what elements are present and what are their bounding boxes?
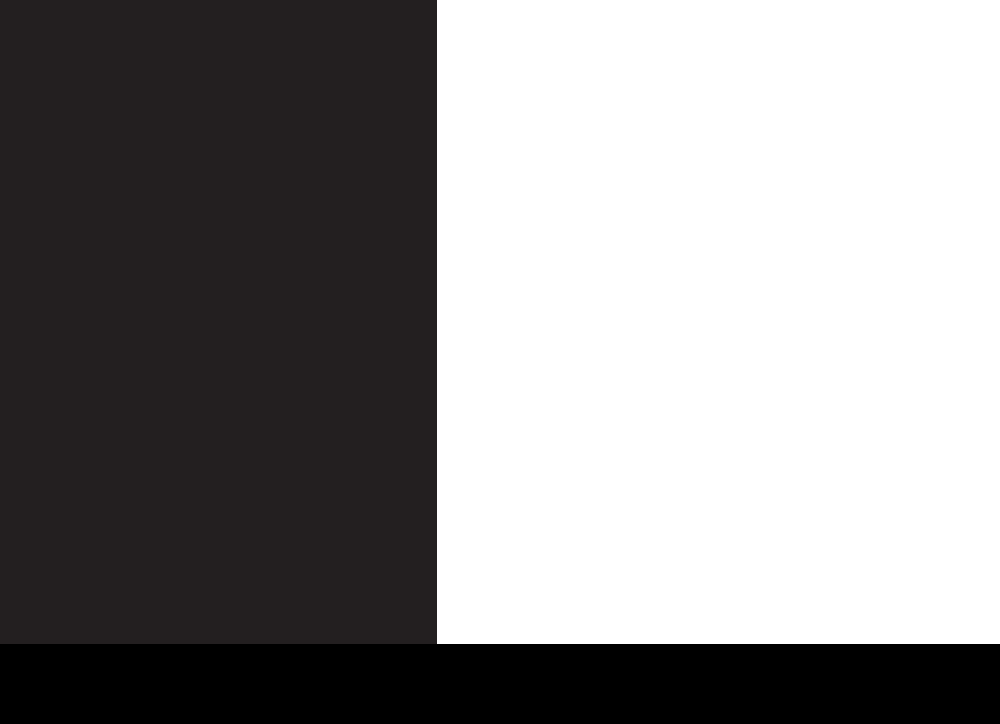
left-building	[0, 0, 437, 644]
watermark-bar: VectorStock VectorStock.com/10915126	[0, 644, 1000, 724]
illustration-canvas: VectorStock VectorStock.com/10915126	[0, 0, 1000, 724]
